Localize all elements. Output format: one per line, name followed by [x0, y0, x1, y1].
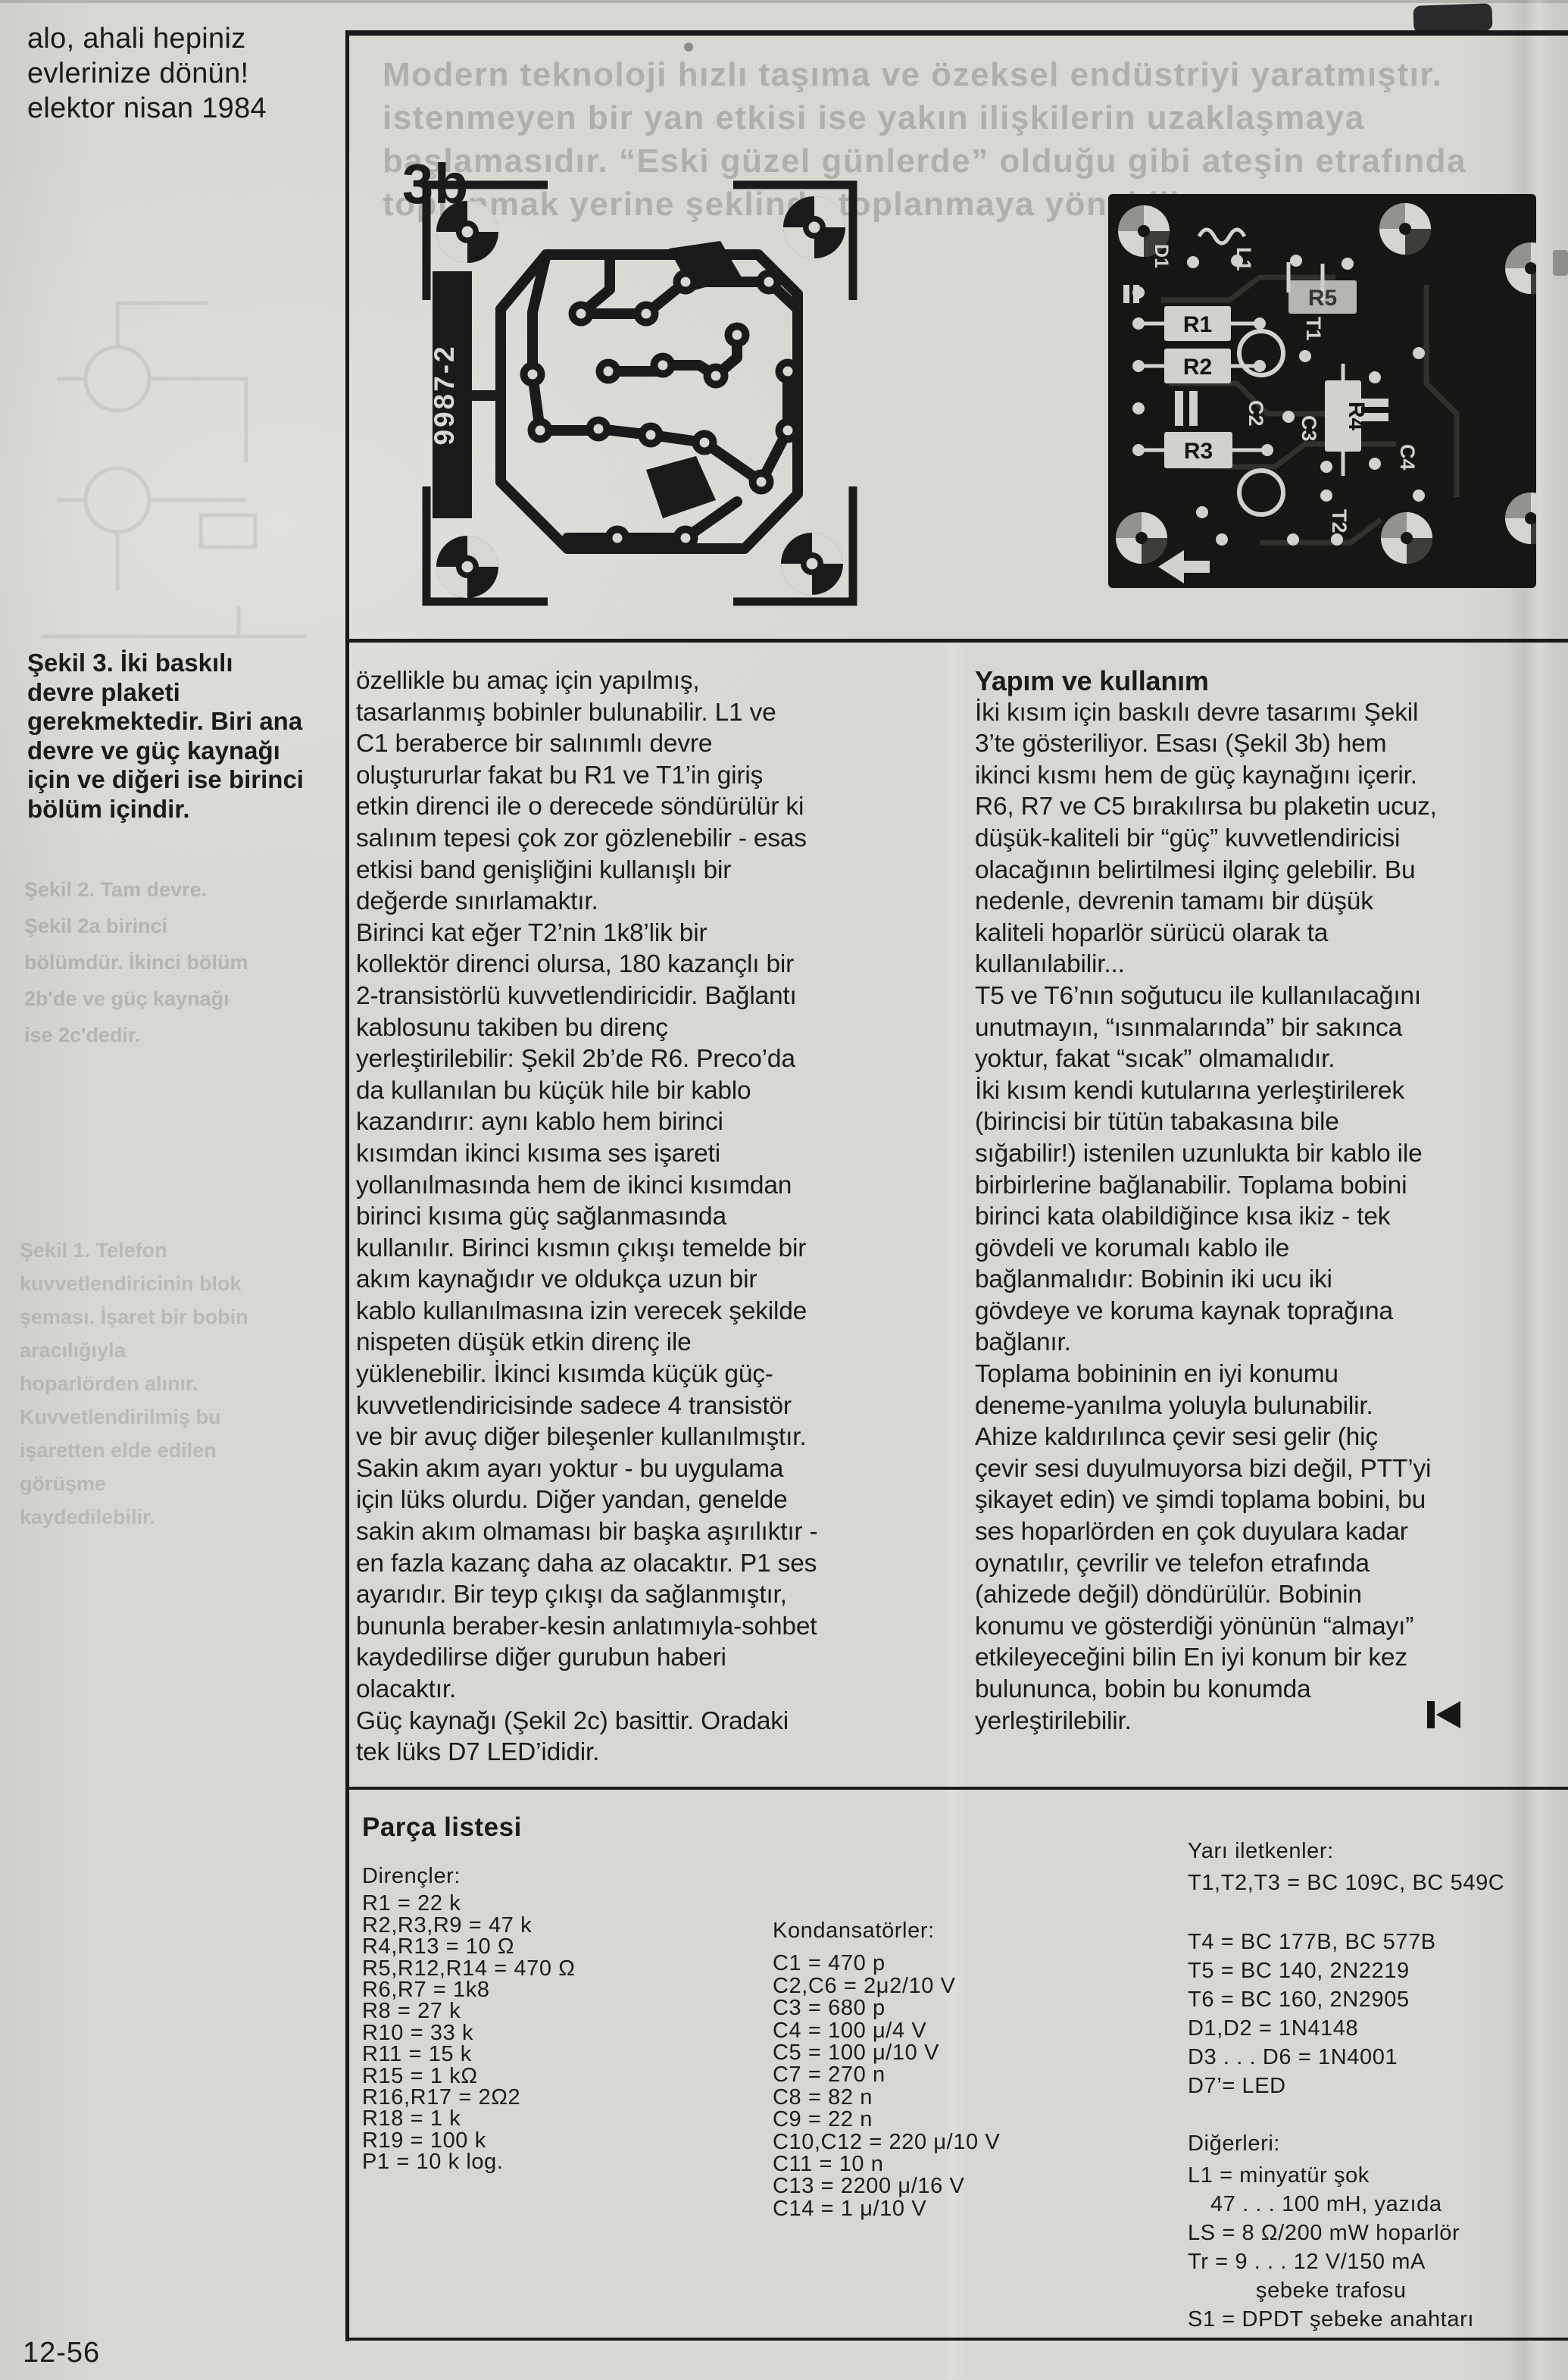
ghost-line: kuvvetlendiricinin blok	[20, 1267, 248, 1300]
caption-line: Şekil 3. İki baskılı	[27, 649, 345, 678]
scan-speck	[684, 42, 693, 52]
text-line: gövdeli ve korumalı kablo ile	[975, 1233, 1528, 1265]
parts-resistors-items: R1 = 22 kR2,R3,R9 = 47 kR4,R13 = 10 ΩR5,…	[362, 1893, 576, 2172]
text-line: kablosunu takiben bu direnç	[356, 1012, 879, 1044]
label-r4: R4	[1344, 402, 1369, 431]
section-heading: Yapım ve kullanım	[975, 665, 1528, 697]
part-item: C11 = 10 n	[773, 2153, 1000, 2175]
part-item: R19 = 100 k	[362, 2130, 576, 2151]
scan-ink-blob	[1413, 3, 1492, 33]
ghost-line: hoparlörden alınır.	[20, 1367, 248, 1400]
text-line: etkin direnci ile o derecede söndürülür …	[356, 791, 879, 823]
parts-semiconductors-rest: T4 = BC 177B, BC 577BT5 = BC 140, 2N2219…	[1188, 1928, 1504, 2100]
caption-line: için ve diğeri ise birinci	[27, 765, 345, 795]
text-line: akım kaynağıdır ve oldukça uzun bir	[356, 1264, 879, 1296]
part-item: C5 = 100 μ/10 V	[773, 2042, 1000, 2064]
ghost-line: aracılığıyla	[20, 1334, 248, 1367]
text-line: kaliteli hoparlör sürücü olarak ta	[975, 918, 1528, 949]
figure-bottom-rule	[349, 639, 1568, 643]
part-item: D3 . . . D6 = 1N4001	[1188, 2043, 1504, 2072]
text-line: yollanılmasında hem de ikinci kısımdan	[356, 1170, 879, 1202]
text-line: C1 beraberce bir salınımlı devre	[356, 728, 879, 760]
caption-line: devre ve güç kaynağı	[27, 737, 345, 766]
text-line: en fazla kazanç daha az olacaktır. P1 se…	[356, 1548, 879, 1580]
label-c3: C3	[1298, 415, 1320, 442]
text-line: tek lüks D7 LED’ididir.	[356, 1737, 879, 1769]
text-line: etkisi band genişliğini kullanışlı bir	[356, 855, 879, 887]
part-item: T6 = BC 160, 2N2905	[1188, 1985, 1504, 2014]
text-line: İki kısım için baskılı devre tasarımı Şe…	[975, 697, 1528, 729]
pcb-copper-layout: 9987-2	[419, 176, 862, 611]
ghost-line: ise 2c'dedir.	[24, 1017, 248, 1053]
label-c2: C2	[1245, 400, 1267, 427]
text-line: nispeten düşük etkin direnç ile	[356, 1327, 879, 1359]
part-item: C14 = 1 μ/10 V	[773, 2198, 1000, 2220]
parts-group-heading: Diğerleri:	[1188, 2126, 1504, 2161]
part-item: C4 = 100 μ/4 V	[773, 2020, 1000, 2042]
text-line: Güç kaynağı (Şekil 2c) basittir. Oradaki	[356, 1706, 879, 1737]
part-item: R10 = 33 k	[362, 2022, 576, 2044]
text-line: olacağının belirtilmesi ilginç gelebilir…	[975, 855, 1528, 887]
ghost-line: Şekil 2. Tam devre.	[24, 871, 248, 908]
text-line: şikayet edin) ve şimdi toplama bobini, b…	[975, 1484, 1528, 1516]
part-item: R2,R3,R9 = 47 k	[362, 1915, 576, 1936]
text-line: ve bir avuç diğer bileşenler kullanılmış…	[356, 1421, 879, 1453]
text-line: etkileyeceğini bilin En iyi konum bir ke…	[975, 1642, 1528, 1674]
text-line: İki kısım kendi kutularına yerleştiriler…	[975, 1075, 1528, 1107]
text-line: kaydedilirse diğer gurubun haberi	[356, 1642, 879, 1674]
parts-group-heading: Yarı iletkenler:	[1188, 1834, 1504, 1869]
end-of-article-icon	[1426, 1700, 1462, 1730]
ghost-line: şeması. İşaret bir bobin	[20, 1300, 248, 1334]
part-item: C8 = 82 n	[773, 2087, 1000, 2109]
text-line: kablo kullanılmasına izin verecek şekild…	[356, 1296, 879, 1328]
bleed-through-caption-b: Şekil 1. Telefonkuvvetlendiricinin blokş…	[20, 1234, 248, 1534]
label-r5: R5	[1308, 286, 1337, 311]
text-line: oynatılır, çevrilir ve telefon etrafında	[975, 1548, 1528, 1580]
ghost-line: Kuvvetlendirilmiş bu	[20, 1400, 248, 1434]
parts-others-items: L1 = minyatür şok47 . . . 100 mH, yazıda…	[1188, 2161, 1504, 2334]
part-item: C1 = 470 p	[773, 1953, 1000, 1975]
text-line: özellikle bu amaç için yapılmış,	[356, 665, 879, 697]
text-line: deneme-yanılma yoluyla bulunabilir.	[975, 1390, 1528, 1422]
label-t2: T2	[1328, 509, 1351, 533]
bleed-through-caption-a: Şekil 2. Tam devre.Şekil 2a birincibölüm…	[24, 871, 248, 1053]
text-line: kollektör direnci olursa, 180 kazançlı b…	[356, 949, 879, 980]
part-item: R15 = 1 kΩ	[362, 2066, 576, 2087]
copper-fill-bottom	[646, 456, 716, 518]
ghost-line: istenmeyen bir yan etkisi ise yakın iliş…	[383, 96, 1568, 139]
part-item: P1 = 10 k log.	[362, 2151, 576, 2172]
article-column-1: özellikle bu amaç için yapılmış,tasarlan…	[356, 665, 879, 1769]
text-line: kullanılır. Birinci kısmın çıkışı temeld…	[356, 1233, 879, 1265]
text-line: bağlanır.	[975, 1327, 1528, 1359]
text-line: birinci kısıma güç sağlanmasında	[356, 1201, 879, 1233]
text-line: için lüks olurdu. Diğer yandan, genelde	[356, 1484, 879, 1516]
copper-traces	[472, 255, 798, 549]
text-line: ikinci kısmı hem de güç kaynağını içerir…	[975, 760, 1528, 792]
text-line: değerde sınırlamaktır.	[356, 886, 879, 918]
text-line: bağlanmalıdır: Bobinin iki ucu iki	[975, 1264, 1528, 1296]
part-item: D1,D2 = 1N4148	[1188, 2014, 1504, 2043]
text-line: kuvvetlendiricisinde sadece 4 transistör	[356, 1390, 879, 1422]
part-item: S1 = DPDT şebeke anahtarı	[1188, 2305, 1504, 2334]
label-r2: R2	[1183, 355, 1212, 380]
magazine-page: { "page": { "note_lines": ["alo, ahali h…	[0, 0, 1568, 2380]
text-line: yoktur, fakat “sıcak” olmamalıdır.	[975, 1043, 1528, 1075]
text-line: nedenle, devrenin tamamı bir düşük	[975, 886, 1528, 918]
text-line: R6, R7 ve C5 bırakılırsa bu plaketin ucu…	[975, 791, 1528, 823]
part-item: 47 . . . 100 mH, yazıda	[1188, 2190, 1504, 2219]
part-item: şebeke trafosu	[1188, 2276, 1504, 2305]
part-item: R18 = 1 k	[362, 2108, 576, 2129]
ghost-line: bölümdür. İkinci bölüm	[24, 944, 248, 980]
text-line: düşük-kaliteli bir “güç” kuvvetlendirici…	[975, 823, 1528, 855]
text-line: yerleştirilebilir: Şekil 2b’de R6. Preco…	[356, 1043, 879, 1075]
header-note-line: alo, ahali hepiniz	[27, 21, 267, 56]
part-item: R5,R12,R14 = 470 Ω	[362, 1958, 576, 1979]
ghost-line: Modern teknoloji hızlı taşıma ve özeksel…	[383, 53, 1568, 96]
part-item: T5 = BC 140, 2N2219	[1188, 1956, 1504, 1985]
parts-group-heading: Kondansatörler:	[773, 1920, 1000, 1942]
text-line: kısımdan ikinci kısıma ses işareti	[356, 1138, 879, 1170]
label-t1: T1	[1302, 317, 1325, 341]
figure-top-rule	[345, 30, 1568, 36]
part-item: Tr = 9 . . . 12 V/150 mA	[1188, 2247, 1504, 2276]
part-item: R4,R13 = 10 Ω	[362, 1936, 576, 1957]
text-line: tasarlanmış bobinler bulunabilir. L1 ve	[356, 697, 879, 729]
text-line: Sakin akım ayarı yoktur - bu uygulama	[356, 1453, 879, 1485]
text-line: çevir sesi duyulmuyorsa bizi değil, PTT’…	[975, 1453, 1528, 1485]
text-line: sığabilir!) istenilen uzunlukta bir kabl…	[975, 1138, 1528, 1170]
text-line: sakin akım olmaması bir başka aşırılıktı…	[356, 1516, 879, 1548]
ghost-line: Şekil 2a birinci	[24, 908, 248, 944]
text-line: da kullanılan bu küçük hile bir kablo	[356, 1075, 879, 1107]
text-line: Ahize kaldırılınca çevir sesi gelir (hiç	[975, 1421, 1528, 1453]
column-divider-rule	[345, 30, 349, 2341]
part-item: R6,R7 = 1k8	[362, 1979, 576, 2000]
text-line: kullanılabilir...	[975, 949, 1528, 980]
text-line: konumu ve gösterdiği yönünün “almayı”	[975, 1611, 1528, 1643]
pcb-component-photo: R1 R2 R3 R5 R4 T1 T2 C2 C3 C4 L1 D1	[1108, 194, 1536, 588]
parts-top-rule	[349, 1787, 1568, 1790]
parts-capacitors: Kondansatörler: C1 = 470 pC2,C6 = 2μ2/10…	[773, 1920, 1000, 2220]
label-r3: R3	[1184, 439, 1213, 464]
parts-capacitors-items: C1 = 470 pC2,C6 = 2μ2/10 VC3 = 680 pC4 =…	[773, 1953, 1000, 2220]
parts-semiconductors-first: T1,T2,T3 = BC 109C, BC 549C	[1188, 1869, 1504, 1897]
part-item: LS = 8 Ω/200 mW hoparlör	[1188, 2219, 1504, 2247]
text-line: (birincisi bir tütün tabakasına bile	[975, 1106, 1528, 1138]
header-note-line: evlerinize dönün!	[27, 56, 267, 91]
label-l1: L1	[1232, 247, 1255, 271]
part-item: T4 = BC 177B, BC 577B	[1188, 1928, 1504, 1956]
label-c4: C4	[1396, 444, 1419, 471]
part-item: C9 = 22 n	[773, 2109, 1000, 2131]
part-item: C10,C12 = 220 μ/10 V	[773, 2131, 1000, 2153]
text-line: (ahizede değil) döndürülür. Bobinin	[975, 1579, 1528, 1611]
caption-line: devre plaketi	[27, 678, 345, 708]
scan-top-edge	[0, 0, 1568, 3]
ghost-line: görüşme	[20, 1467, 248, 1500]
text-line: T5 ve T6’nın soğutucu ile kullanılacağın…	[975, 980, 1528, 1012]
text-line: bununla beraber-kesin anlatımıyla-sohbet	[356, 1611, 879, 1643]
article-column-2: Yapım ve kullanım İki kısım için baskılı…	[975, 665, 1528, 1737]
part-item: R16,R17 = 2Ω2	[362, 2087, 576, 2108]
text-line: birbirlerine bağlanabilir. Toplama bobin…	[975, 1170, 1528, 1202]
text-line: unutmayın, “ısınmalarında” bir sakınca	[975, 1012, 1528, 1044]
part-item: C3 = 680 p	[773, 1997, 1000, 2019]
label-r1: R1	[1183, 312, 1212, 337]
scan-edge-mark	[1553, 250, 1568, 276]
text-line: olacaktır.	[356, 1674, 879, 1706]
text-line: 2-transistörlü kuvvetlendiricidir. Bağla…	[356, 980, 879, 1012]
caption-line: bölüm içindir.	[27, 795, 345, 824]
part-item: L1 = minyatür şok	[1188, 2161, 1504, 2190]
ghost-line: kaydedilebilir.	[20, 1500, 248, 1534]
text-line: Toplama bobininin en iyi konumu	[975, 1359, 1528, 1390]
part-item: D7’= LED	[1188, 2072, 1504, 2100]
text-line: 3’te gösteriliyor. Esası (Şekil 3b) hem	[975, 728, 1528, 760]
header-note: alo, ahali hepinizevlerinize dönün!elekt…	[27, 21, 267, 126]
page-number: 12-56	[23, 2337, 100, 2369]
ghost-line: 2b'de ve güç kaynağı	[24, 980, 248, 1017]
parts-semiconductors: Yarı iletkenler: T1,T2,T3 = BC 109C, BC …	[1188, 1834, 1504, 2334]
part-item: C13 = 2200 μ/16 V	[773, 2175, 1000, 2197]
parts-bottom-rule	[349, 2338, 1568, 2341]
text-line: yüklenebilir. İkinci kısımda küçük güç-	[356, 1359, 879, 1390]
text-line: salınım tepesi çok zor gözlenebilir - es…	[356, 823, 879, 855]
part-item: C7 = 270 n	[773, 2064, 1000, 2086]
text-line: Birinci kat eğer T2’nin 1k8’lik bir	[356, 918, 879, 949]
text-line: kazandırır: aynı kablo hem birinci	[356, 1106, 879, 1138]
text-line: gövdeye ve koruma kaynak toprağına	[975, 1296, 1528, 1328]
text-line: oluştururlar fakat bu R1 ve T1’in giriş	[356, 760, 879, 792]
label-d1: D1	[1151, 244, 1172, 268]
figure-caption: Şekil 3. İki baskılıdevre plaketigerekme…	[27, 649, 345, 824]
text-line: birinci kata olabildiğince kısa ikiz - t…	[975, 1201, 1528, 1233]
article-column-2-body: İki kısım için baskılı devre tasarımı Şe…	[975, 697, 1528, 1737]
text-line: ses hoparlörden en çok duyulara kadar	[975, 1516, 1528, 1548]
text-line: ayarıdır. Bir teyp çıkışı da sağlanmıştı…	[356, 1579, 879, 1611]
board-code: 9987-2	[429, 344, 460, 445]
parts-resistors: Dirençler: R1 = 22 kR2,R3,R9 = 47 kR4,R1…	[362, 1866, 576, 2173]
caption-line: gerekmektedir. Biri ana	[27, 707, 345, 737]
part-item: R8 = 27 k	[362, 2000, 576, 2022]
ghost-line: işaretten elde edilen	[20, 1434, 248, 1467]
part-item: R11 = 15 k	[362, 2044, 576, 2065]
part-item: T1,T2,T3 = BC 109C, BC 549C	[1188, 1869, 1504, 1897]
bleed-through-schematic-doodle	[11, 273, 345, 697]
ghost-line: Şekil 1. Telefon	[20, 1234, 248, 1267]
part-item: R1 = 22 k	[362, 1893, 576, 1914]
parts-group-heading: Dirençler:	[362, 1866, 576, 1887]
part-item: C2,C6 = 2μ2/10 V	[773, 1975, 1000, 1997]
header-note-line: elektor nisan 1984	[27, 91, 267, 126]
parts-list-title: Parça listesi	[362, 1812, 522, 1843]
